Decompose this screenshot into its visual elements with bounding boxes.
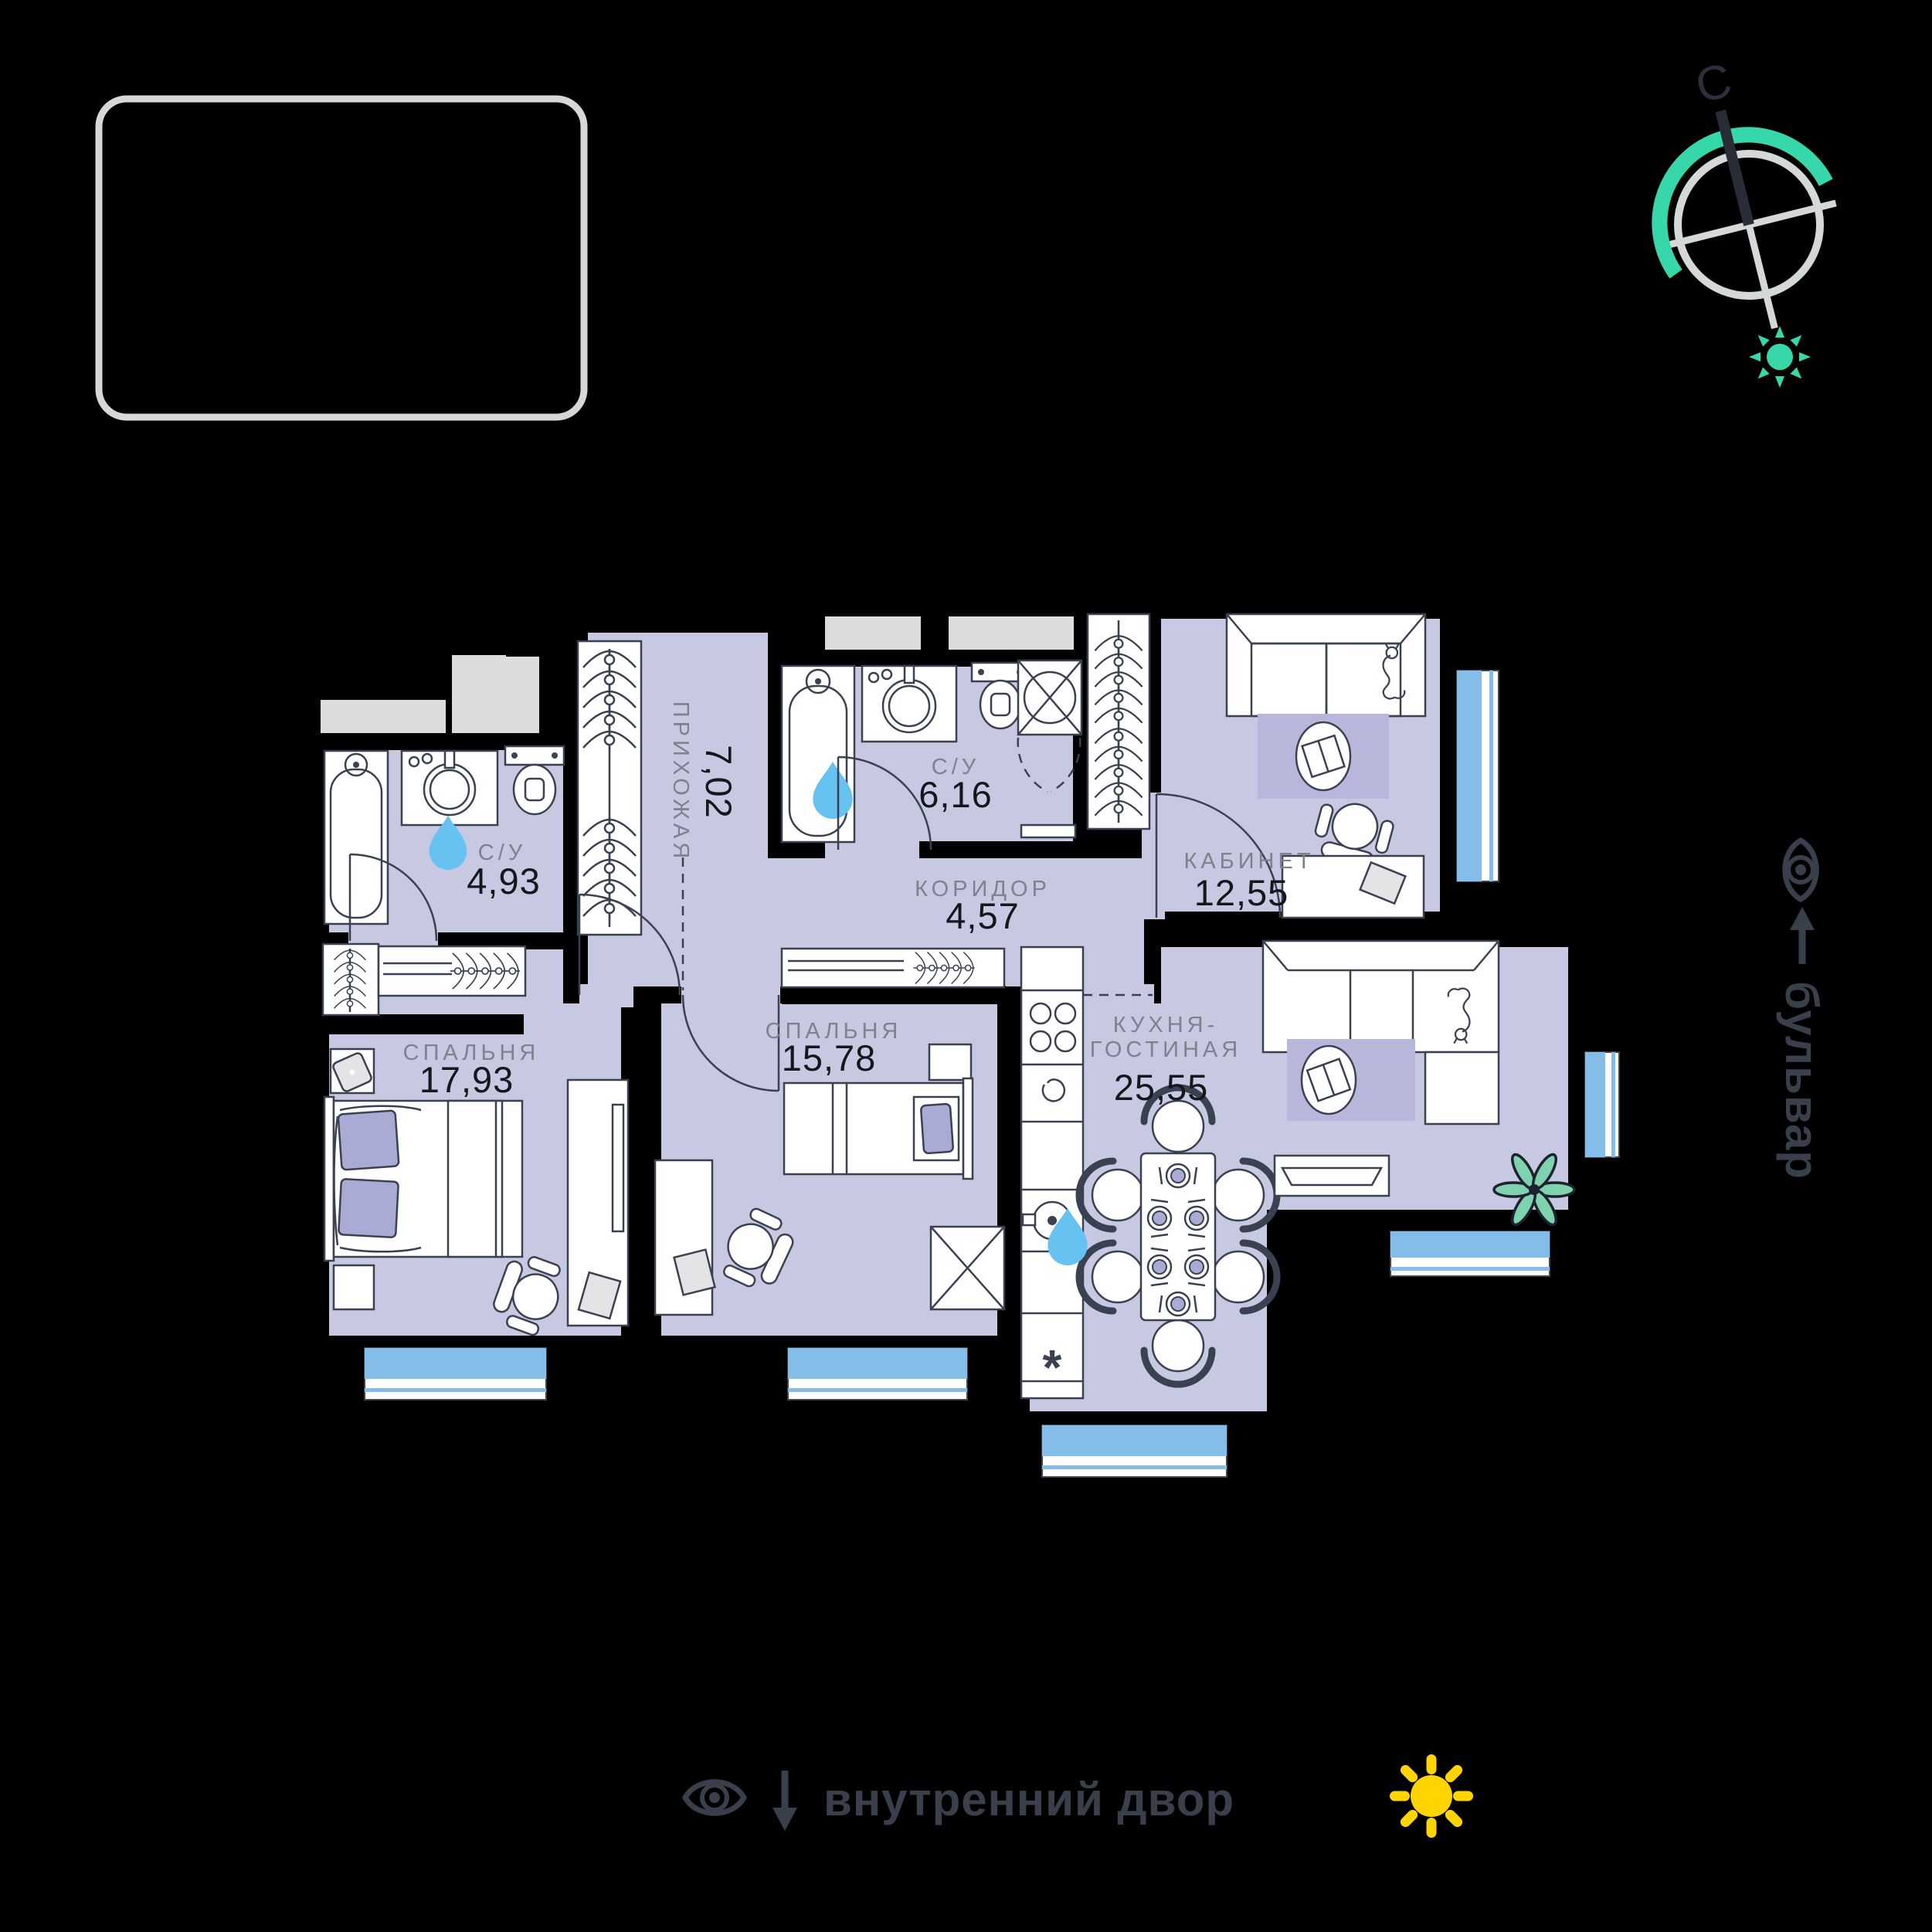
- bedroom2-desk: [655, 1160, 715, 1315]
- hallway-name: ПРИХОЖАЯ: [668, 701, 693, 862]
- street-right-label: бульвар: [1776, 981, 1828, 1180]
- kitchen-name-line1: КУХНЯ-: [1113, 1013, 1219, 1037]
- double-bed: [324, 1097, 522, 1261]
- floor-plan-page: *: [0, 0, 1932, 1932]
- kitchen-rug: [1287, 1039, 1415, 1121]
- pillow: [338, 1179, 399, 1238]
- bedroom1-area: 17,93: [419, 1059, 514, 1100]
- tv-console: [1275, 1156, 1389, 1196]
- window-bedroom1: [365, 1348, 546, 1400]
- bedroom2-wardrobe-strip: [782, 949, 1004, 987]
- pillow: [921, 1104, 953, 1153]
- nightstand: [929, 1044, 971, 1080]
- office-rug: [1258, 714, 1389, 799]
- hallway-wardrobe: [578, 641, 641, 935]
- view-eye-icon: [685, 1782, 744, 1814]
- sun-icon-teal: [1749, 326, 1811, 388]
- bedroom2-area: 15,78: [782, 1037, 877, 1078]
- street-bottom: внутренний двор: [685, 1771, 1234, 1831]
- office-name: КАБИНЕТ: [1183, 849, 1314, 874]
- compass: С: [1620, 36, 1861, 350]
- bench: [1021, 825, 1075, 837]
- bathroom-main-area: 6,16: [918, 774, 992, 815]
- bathroom-ensuite-area: 4,93: [467, 861, 540, 901]
- bedroom2-closet: [931, 1227, 1004, 1309]
- corridor-area: 4,57: [946, 895, 1019, 936]
- bedroom1-desk: [568, 1080, 628, 1326]
- dishwasher-symbol: *: [1043, 1339, 1062, 1395]
- office-wardrobe: [1088, 614, 1149, 829]
- street-bottom-label: внутренний двор: [823, 1774, 1234, 1825]
- single-bed: [784, 1078, 973, 1179]
- window-bedroom2: [788, 1348, 967, 1400]
- kitchen-appliance-column: *: [1021, 947, 1083, 1398]
- view-eye-icon: [1785, 840, 1817, 899]
- nightstand: [334, 1265, 374, 1309]
- office-area: 12,55: [1194, 872, 1289, 913]
- hallway-area: 7,02: [698, 745, 739, 818]
- kitchen-area: 25,55: [1114, 1067, 1209, 1108]
- bathtub: [324, 751, 388, 924]
- window-kitchen-east: [1585, 1052, 1619, 1157]
- office-sofa: [1227, 614, 1425, 716]
- window-kitchen-south: [1390, 1231, 1550, 1276]
- nightstand-lamp: [331, 1049, 374, 1093]
- window-office-east: [1457, 671, 1499, 881]
- kitchen-name-line2: ГОСТИНАЯ: [1090, 1037, 1241, 1062]
- sun-icon-yellow: [1390, 1754, 1473, 1838]
- window-kitchen-bottom: [1042, 1425, 1227, 1477]
- info-frame: [99, 99, 584, 417]
- compass-north-letter: С: [1690, 53, 1737, 114]
- pillow: [338, 1111, 399, 1170]
- floor-plan-canvas: *: [0, 0, 1932, 1932]
- street-right: бульвар: [1776, 840, 1828, 1180]
